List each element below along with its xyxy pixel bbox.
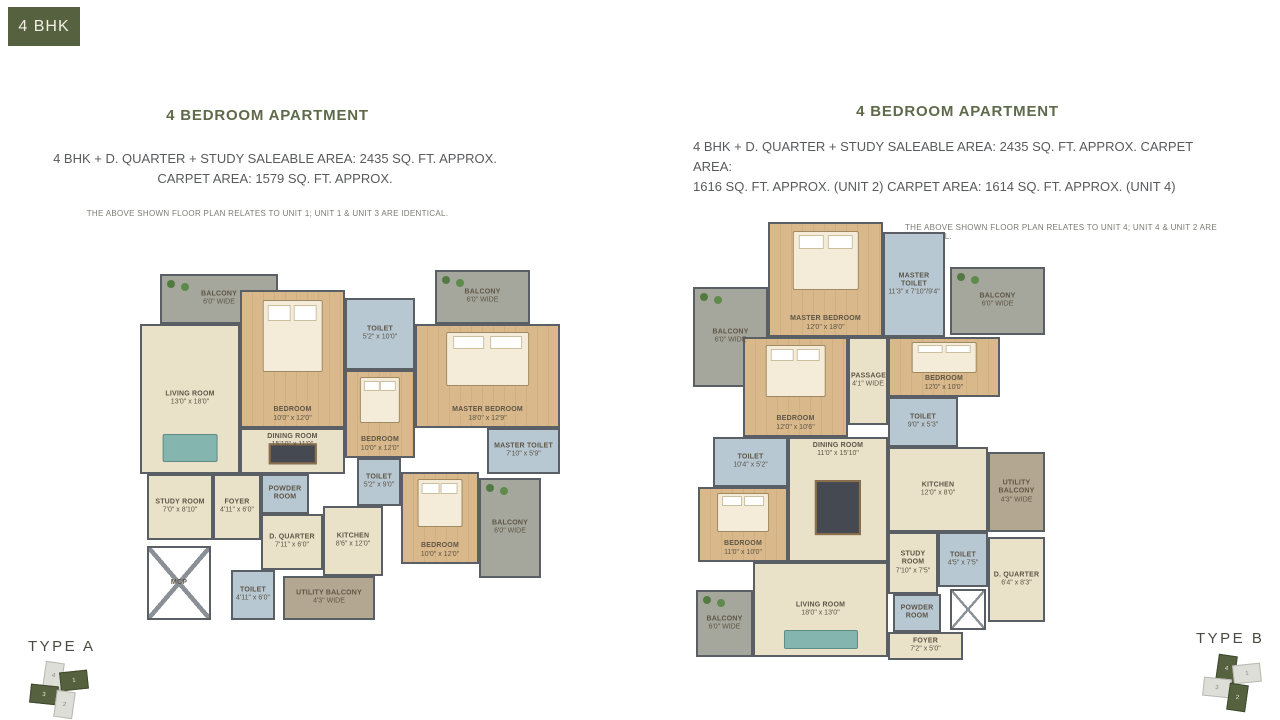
type-b-label: TYPE B [1196,630,1264,647]
keyplan-unit-1: 1 [1232,663,1262,685]
room-label: PASSAGE4'1" WIDE [851,373,885,390]
room-toilet: TOILET5'2" x 9'0" [357,458,401,506]
room-label: TOILET4'5" x 7'5" [941,551,985,568]
room-bedroom: BEDROOM12'0" x 10'6" [743,337,848,437]
room-passage: PASSAGE4'1" WIDE [848,337,888,425]
room-living-room: LIVING ROOM18'0" x 13'0" [753,562,888,657]
bed-icon [765,345,826,397]
room-label: BALCONY6'0" WIDE [699,615,750,632]
room-balcony: BALCONY6'0" WIDE [479,478,541,578]
room-study-room: STUDY ROOM7'10" x 7'5" [888,532,938,594]
right-area-text: 4 BHK + D. QUARTER + STUDY SALEABLE AREA… [693,137,1225,197]
type-b-keyplan-icon: 4132 [1203,655,1265,711]
room-label: TOILET5'2" x 10'0" [348,326,412,343]
room-master-toilet: MASTER TOILET7'10" x 5'9" [487,428,560,474]
room-label: BALCONY6'0" WIDE [953,293,1042,310]
room-balcony: BALCONY6'0" WIDE [950,267,1045,335]
room-label: KITCHEN12'0" x 8'0" [891,481,985,498]
type-a-label: TYPE A [28,638,96,655]
room-label: UTILITY BALCONY4'3" WIDE [286,590,372,607]
room-d-quarter: D. QUARTER7'11" x 6'0" [261,514,323,570]
floor-plan-type-a: BALCONY6'0" WIDELIVING ROOM13'0" x 18'0"… [135,268,605,628]
room-kitchen: KITCHEN12'0" x 8'0" [888,447,988,532]
room-label: LIVING ROOM13'0" x 18'0" [143,391,237,408]
room-label: BEDROOM11'0" x 10'0" [701,540,785,557]
room-balcony: BALCONY6'0" WIDE [435,270,530,324]
room-master-bedroom: MASTER BEDROOM12'0" x 18'0" [768,222,883,337]
table-icon [815,480,861,535]
bhk-tag: 4 BHK [8,7,80,46]
room-label: BALCONY6'0" WIDE [438,289,527,306]
keyplan-unit-2: 2 [53,690,76,719]
room-label: KITCHEN8'6" x 12'0" [326,533,380,550]
room-label: MASTER BEDROOM18'0" x 12'9" [418,406,557,423]
room-label: FOYER7'2" x 5'0" [891,638,960,655]
room-utility-balcony: UTILITY BALCONY4'3" WIDE [283,576,375,620]
left-area-line1: 4 BHK + D. QUARTER + STUDY SALEABLE AREA… [40,149,510,169]
room-label: TOILET9'0" x 5'3" [891,414,955,431]
room-living-room: LIVING ROOM13'0" x 18'0" [140,324,240,474]
room-label: STUDY ROOM7'10" x 7'5" [891,550,935,575]
room-toilet: TOILET4'5" x 7'5" [938,532,988,587]
left-note: THE ABOVE SHOWN FLOOR PLAN RELATES TO UN… [40,209,495,218]
room-powder-room: POWDER ROOM [893,594,941,632]
room-utility-balcony: UTILITY BALCONY4'3" WIDE [988,452,1045,532]
bed-icon [418,479,463,527]
room-label: MASTER TOILET11'3" x 7'10"/9'4" [886,272,942,297]
right-area-line1: 4 BHK + D. QUARTER + STUDY SALEABLE AREA… [693,137,1225,177]
room-shaft [950,589,986,630]
right-heading: 4 BEDROOM APARTMENT [695,103,1220,120]
bed-icon [360,377,400,423]
left-area-line2: CARPET AREA: 1579 SQ. FT. APPROX. [40,169,510,189]
room-foyer: FOYER4'11" x 6'0" [213,474,261,540]
room-dining-room: DINING ROOM11'0" x 15'10" [788,437,888,562]
type-a-keyplan-icon: 4132 [30,662,92,718]
room-bedroom: BEDROOM10'0" x 12'0" [345,370,415,458]
sofa-icon [783,630,857,648]
room-kitchen: KITCHEN8'6" x 12'0" [323,506,383,576]
brochure-page: 4 BHK 4 BEDROOM APARTMENT 4 BHK + D. QUA… [0,0,1280,720]
room-powder-room: POWDER ROOM [261,474,309,514]
room-label: FOYER4'11" x 6'0" [216,499,258,516]
bed-icon [262,300,323,372]
room-label: BEDROOM12'0" x 10'0" [891,375,997,392]
room-label: LIVING ROOM18'0" x 13'0" [756,601,885,618]
sofa-icon [163,434,218,462]
room-label: DINING ROOM15'10" x 11'0" [243,433,342,450]
room-bedroom: BEDROOM10'0" x 12'0" [401,472,479,564]
floor-plan-type-b: BALCONY6'0" WIDEMASTER BEDROOM12'0" x 18… [688,212,1053,662]
room-label: DINING ROOM11'0" x 15'10" [791,442,885,459]
room-label: D. QUARTER7'11" x 6'0" [264,534,320,551]
room-label: POWDER ROOM [264,486,306,503]
room-label: MCP [150,579,208,587]
room-toilet: TOILET5'2" x 10'0" [345,298,415,370]
room-label: UTILITY BALCONY4'3" WIDE [991,479,1042,504]
room-toilet: TOILET9'0" x 5'3" [888,397,958,447]
room-label: D. QUARTER6'4" x 8'3" [991,571,1042,588]
room-d-quarter: D. QUARTER6'4" x 8'3" [988,537,1045,622]
right-area-line2: 1616 SQ. FT. APPROX. (UNIT 2) CARPET ARE… [693,177,1225,197]
room-bedroom: BEDROOM11'0" x 10'0" [698,487,788,562]
bed-icon [446,332,530,386]
room-label: MASTER TOILET7'10" x 5'9" [490,443,557,460]
room-label: STUDY ROOM7'0" x 8'10" [150,499,210,516]
room-bedroom: BEDROOM12'0" x 10'0" [888,337,1000,397]
room-label: BALCONY6'0" WIDE [696,329,765,346]
room-master-bedroom: MASTER BEDROOM18'0" x 12'9" [415,324,560,428]
room-toilet: TOILET10'4" x 5'2" [713,437,788,487]
room-study-room: STUDY ROOM7'0" x 8'10" [147,474,213,540]
room-balcony: BALCONY6'0" WIDE [696,590,753,657]
room-label: BALCONY6'0" WIDE [482,520,538,537]
room-master-toilet: MASTER TOILET11'3" x 7'10"/9'4" [883,232,945,337]
room-label: TOILET4'11" x 6'0" [234,587,272,604]
room-mcp: MCP [147,546,211,620]
room-label: BEDROOM10'0" x 12'0" [404,542,476,559]
bed-icon [912,342,977,373]
keyplan-unit-2: 2 [1226,683,1249,712]
room-label: MASTER BEDROOM12'0" x 18'0" [771,315,880,332]
room-label: BEDROOM12'0" x 10'6" [746,415,845,432]
room-toilet: TOILET4'11" x 6'0" [231,570,275,620]
room-foyer: FOYER7'2" x 5'0" [888,632,963,660]
room-label: BEDROOM10'0" x 12'0" [348,436,412,453]
room-label: BEDROOM10'0" x 12'0" [243,406,342,423]
room-bedroom: BEDROOM10'0" x 12'0" [240,290,345,428]
left-area-text: 4 BHK + D. QUARTER + STUDY SALEABLE AREA… [40,149,510,189]
room-label: POWDER ROOM [896,605,938,622]
keyplan-unit-1: 1 [59,670,89,692]
room-label: TOILET10'4" x 5'2" [716,454,785,471]
room-label: BALCONY6'0" WIDE [163,291,275,308]
bed-icon [717,493,769,532]
bed-icon [792,231,858,291]
left-heading: 4 BEDROOM APARTMENT [40,107,495,124]
room-dining-room: DINING ROOM15'10" x 11'0" [240,428,345,474]
room-label: TOILET5'2" x 9'0" [360,474,398,491]
